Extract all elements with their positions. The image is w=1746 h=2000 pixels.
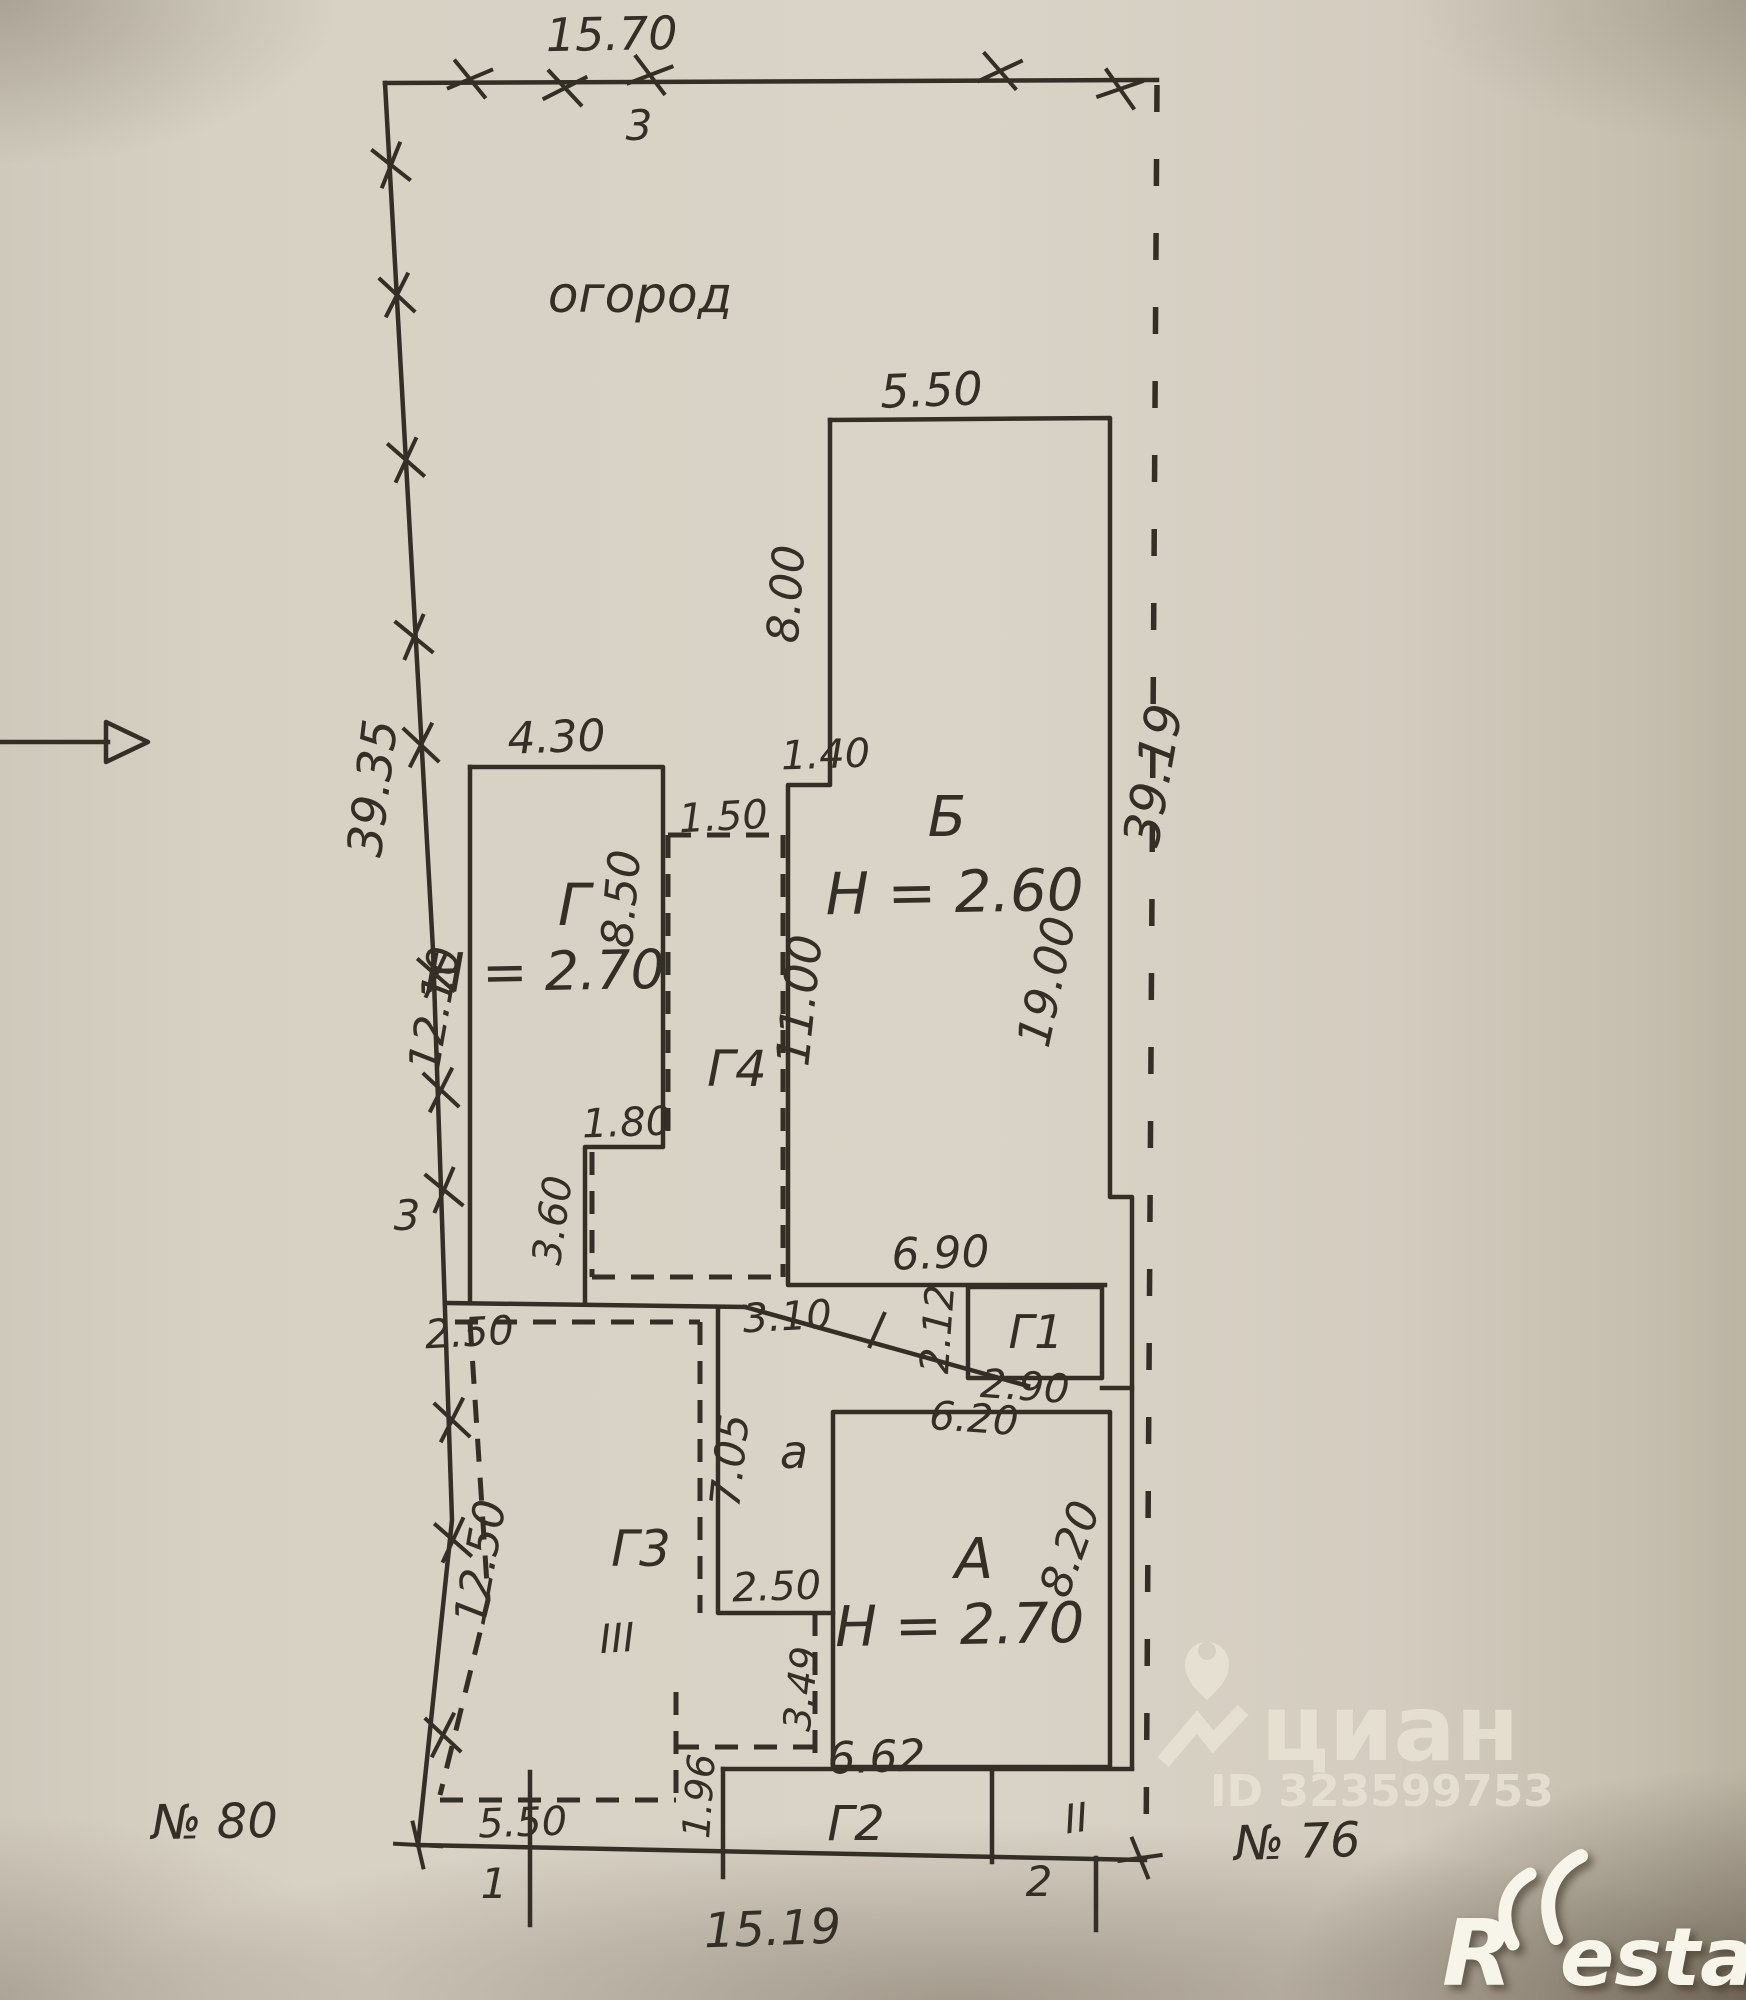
restate-watermark: R estate (1442, 1856, 1746, 2000)
dim-b-left: 11.00 (765, 932, 832, 1069)
dim-g2-left: 1.96 (674, 1752, 724, 1839)
point-2-label: 2 (1026, 1857, 1053, 1906)
building-g3-letter: Г3 (611, 1520, 671, 1578)
boundary-right-dashed-line (1146, 85, 1157, 1858)
neighbor-left-label: № 80 (148, 1793, 278, 1851)
building-g1-letter: Г1 (1009, 1305, 1064, 1359)
dim-porch-left: 7.05 (700, 1411, 759, 1509)
dim-b-right: 19.00 (1006, 912, 1086, 1052)
cian-pin-icon (1185, 1642, 1229, 1700)
porch-letter: а (780, 1425, 808, 1479)
dim-a-bottom: 6.62 (827, 1730, 927, 1784)
restate-arc-small (1505, 1874, 1530, 1944)
restate-est-text: estate (1560, 1911, 1746, 2000)
boundary-top-line (385, 80, 1157, 83)
building-g2-letter: Г2 (827, 1796, 884, 1852)
dim-left-mid: 12.10 (399, 943, 471, 1076)
dim-g-step-w: 1.80 (581, 1098, 672, 1147)
dim-top-width: 15.70 (545, 6, 678, 62)
cian-id-watermark-text: ID 323599753 (1210, 1766, 1554, 1817)
dim-g3-left: 12.50 (445, 1496, 517, 1629)
building-g-outline (448, 767, 745, 1307)
mark-ii-label: II (1061, 1795, 1091, 1844)
dim-right-length: 39.19 (1112, 700, 1194, 851)
dim-bottom-width: 15.19 (703, 1899, 842, 1960)
building-g4-letter: Г4 (707, 1040, 767, 1098)
dim-left-length: 39.35 (337, 716, 409, 859)
dim-porch-step: 3.49 (775, 1644, 828, 1733)
dim-g4-top: 1.50 (678, 792, 769, 843)
neighbor-right-label: № 76 (1230, 1812, 1361, 1872)
dim-g3-top: 2.50 (424, 1308, 515, 1359)
dim-b-bottom: 6.90 (891, 1226, 991, 1280)
dim-passage: 3.10 (742, 1292, 833, 1343)
building-a-height: Н = 2.70 (834, 1591, 1084, 1660)
building-a-letter: А (952, 1527, 993, 1592)
dim-g1-left: 2.12 (912, 1283, 964, 1375)
dim-g3-bottom: 5.50 (477, 1798, 568, 1847)
site-plan-drawing: 15.70 3 огород 5.50 8.00 39.35 4.30 1.40… (0, 0, 1746, 2000)
dim-g-top: 4.30 (507, 710, 607, 764)
point-top-label: 3 (626, 101, 653, 150)
cian-watermark (1163, 1642, 1243, 1762)
dim-b-topleft: 8.00 (758, 543, 816, 644)
entrance-arrow-head (106, 722, 148, 762)
dim-a-top: 6.20 (928, 1393, 1020, 1445)
garden-label: огород (548, 266, 732, 324)
building-g-letter: Г (558, 871, 595, 939)
labels: 15.70 3 огород 5.50 8.00 39.35 4.30 1.40… (148, 6, 1361, 1960)
dim-g-step-h: 3.60 (524, 1173, 582, 1268)
building-b-letter: Б (928, 785, 966, 850)
point-1-label: 1 (481, 1859, 508, 1908)
mark-iii-label: III (598, 1615, 637, 1663)
dim-a-right: 8.20 (1030, 1494, 1111, 1604)
dim-b-offset: 1.40 (780, 730, 871, 779)
entrance-arrow (0, 722, 148, 762)
dim-porch-bottom: 2.50 (731, 1562, 822, 1611)
cian-figure-icon (1163, 1710, 1243, 1762)
dim-g-right: 8.50 (592, 848, 651, 950)
dim-b-top: 5.50 (879, 361, 983, 419)
point-left-label: 3 (394, 1191, 421, 1240)
